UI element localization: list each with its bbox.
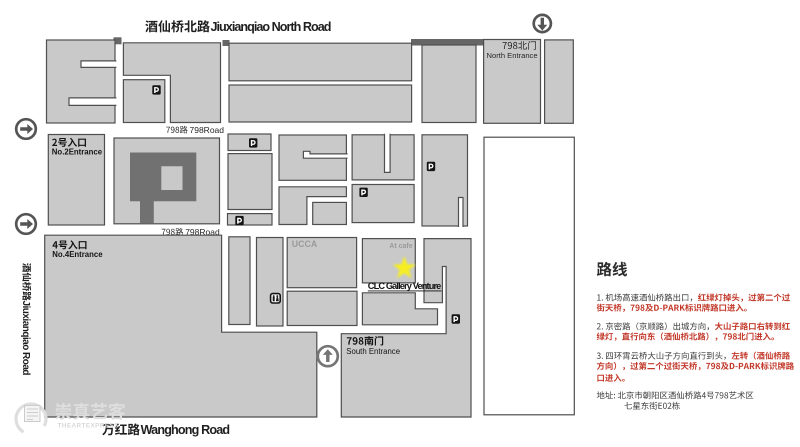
svg-text:South Entrance: South Entrance <box>346 347 400 356</box>
svg-text:No.4Entrance: No.4Entrance <box>52 250 103 259</box>
svg-text:Jiuxianqiao North Road: Jiuxianqiao North Road <box>211 20 332 34</box>
svg-text:No.2Entrance: No.2Entrance <box>52 147 103 156</box>
svg-text:North Entrance: North Entrance <box>487 51 538 60</box>
svg-text:At cafe: At cafe <box>389 243 412 250</box>
svg-text:Jiuxianqiao Road: Jiuxianqiao Road <box>20 301 31 376</box>
svg-text:Wanghong Road: Wanghong Road <box>141 423 231 437</box>
svg-text:CLC Gallery Venture: CLC Gallery Venture <box>368 281 442 291</box>
svg-text:798Road: 798Road <box>190 125 225 135</box>
svg-text:THEARTEXPRESS: THEARTEXPRESS <box>58 423 120 430</box>
svg-text:UCCA: UCCA <box>292 239 318 249</box>
